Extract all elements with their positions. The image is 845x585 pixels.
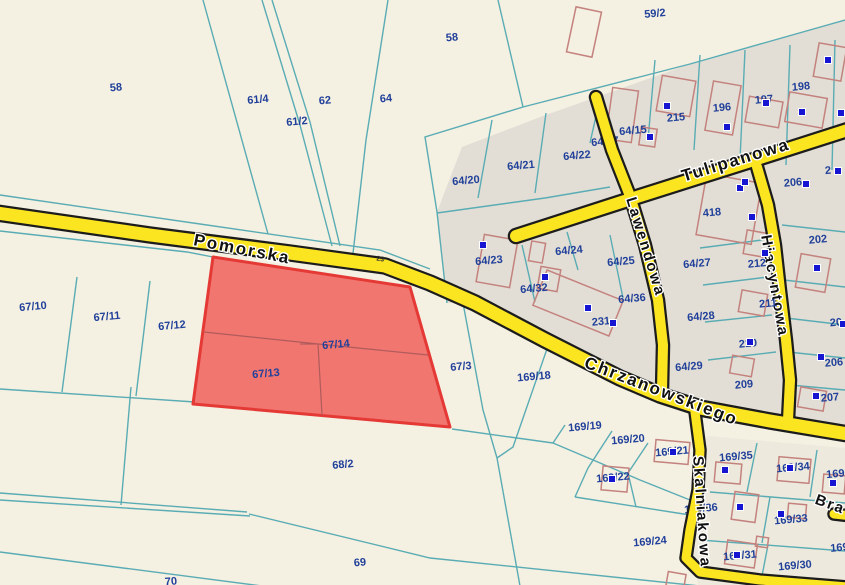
address-point-marker [835,168,842,175]
parcel-label-64-24: 64/24 [555,244,584,258]
parcel-label-62: 62 [318,94,331,107]
address-point-marker [734,552,741,559]
address-point-marker [647,134,654,141]
parcel-label-64-29: 64/29 [675,360,703,374]
parcel-label-67-12: 67/12 [158,319,186,333]
address-point-marker [787,465,794,472]
map-canvas[interactable]: 64/17169/36PomorskaTulipanowaLawendowaHi… [0,0,845,585]
parcel-label-206: 206 [783,176,802,190]
parcel-label-64-32: 64/32 [520,282,548,296]
tiny-road-label: 23 [376,255,385,263]
parcel-label-206: 206 [824,356,843,370]
parcel-label-2: 2 [824,165,831,177]
parcel-label-207: 207 [820,391,839,405]
address-point-marker [724,124,731,131]
parcel-label-64-21: 64/21 [507,159,535,173]
address-point-marker [763,100,770,107]
parcel-label-67-10: 67/10 [19,300,47,314]
cadastral-map-viewport[interactable]: 64/17169/36PomorskaTulipanowaLawendowaHi… [0,0,845,585]
address-point-marker [742,179,749,186]
parcel-label-70: 70 [164,575,177,585]
parcel-label-67-3: 67/3 [450,360,472,374]
parcel-label-59-2: 59/2 [644,7,666,21]
address-point-marker [480,242,487,249]
parcel-label-64-27: 64/27 [683,257,711,271]
address-point-marker [778,511,785,518]
address-point-marker [813,393,820,400]
parcel-label-61-2: 61/2 [286,115,308,129]
parcel-label-202: 202 [808,233,827,247]
address-point-marker [610,320,617,327]
address-point-marker [664,103,671,110]
parcel-label-69: 69 [353,556,366,569]
address-point-marker [830,480,837,487]
address-point-marker [799,109,806,116]
parcel-label-61-4: 61/4 [247,93,270,107]
parcel-label-418: 418 [702,206,721,220]
parcel-label-67-14: 67/14 [322,338,351,352]
address-point-marker [585,305,592,312]
address-point-marker [737,504,744,511]
address-point-marker [825,57,832,64]
parcel-label-68-2: 68/2 [332,458,354,472]
address-point-marker [749,214,756,221]
parcel-label-231: 231 [591,315,610,329]
address-point-marker [722,467,729,474]
address-point-marker [840,321,845,328]
parcel-label-64-15: 64/15 [619,124,647,138]
parcel-label-67-13: 67/13 [252,367,280,381]
address-point-marker [838,110,845,117]
parcel-label-64-36: 64/36 [618,292,646,306]
parcel-label-58: 58 [109,81,122,94]
parcel-label-211: 211 [759,297,778,311]
parcel-label-64: 64 [379,92,393,105]
parcel-label-198: 198 [791,80,810,94]
parcel-label-64-23: 64/23 [475,254,503,268]
address-point-marker [818,354,825,361]
address-point-marker [803,181,810,188]
parcel-label-64-25: 64/25 [607,255,635,269]
address-point-marker [670,449,677,456]
parcel-label-67-11: 67/11 [93,310,121,324]
address-point-marker [762,250,769,257]
address-point-marker [609,476,616,483]
parcel-label-64-28: 64/28 [687,310,715,324]
address-point-marker [814,265,821,272]
address-point-marker [542,274,549,281]
parcel-label-169-: 169/ [830,541,845,555]
parcel-label-196: 196 [712,101,731,115]
address-point-marker [747,339,754,346]
parcel-label-212: 212 [747,257,766,271]
parcel-label-58: 58 [445,31,458,44]
parcel-label-215: 215 [666,111,685,125]
parcel-label-169-3: 169/3 [826,467,845,481]
parcel-label-64-22: 64/22 [563,149,591,163]
parcel-label-209: 209 [734,378,753,392]
parcel-label-64-20: 64/20 [452,174,480,188]
